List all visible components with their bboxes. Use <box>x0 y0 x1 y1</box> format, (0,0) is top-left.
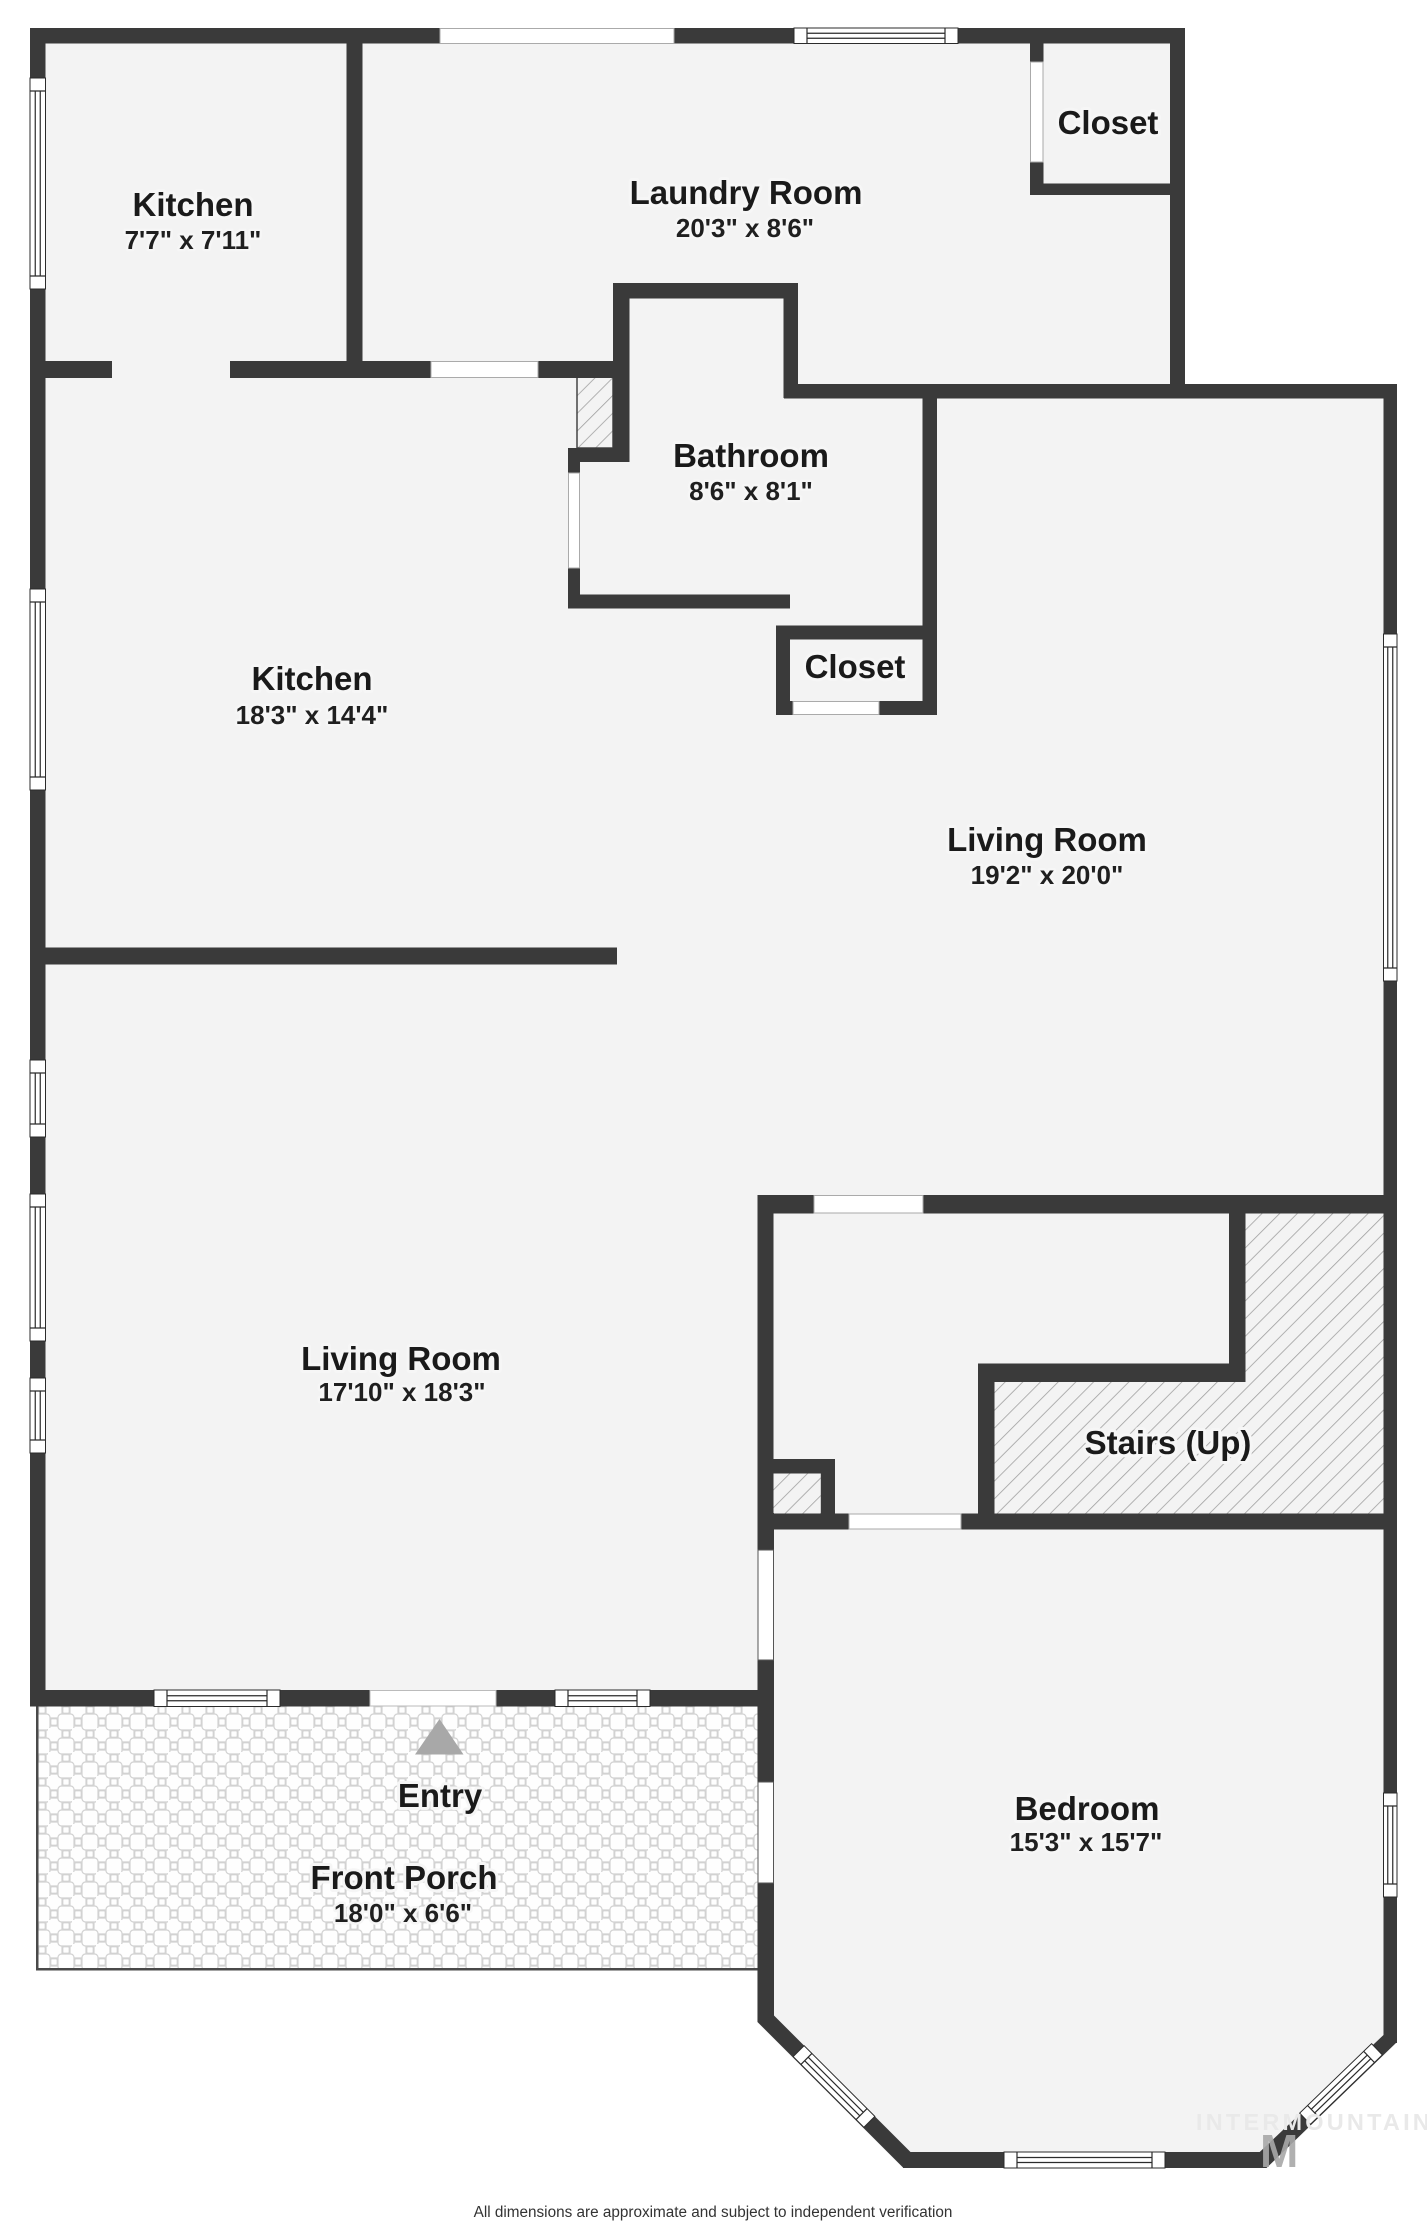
svg-text:Living Room: Living Room <box>947 821 1147 858</box>
svg-text:Living Room: Living Room <box>301 1340 501 1377</box>
svg-text:19'2" x 20'0": 19'2" x 20'0" <box>971 860 1124 890</box>
svg-text:Kitchen: Kitchen <box>132 186 253 223</box>
svg-text:Entry: Entry <box>398 1777 483 1814</box>
svg-text:All dimensions are approximate: All dimensions are approximate and subje… <box>474 2204 953 2221</box>
svg-text:18'0" x 6'6": 18'0" x 6'6" <box>334 1898 472 1928</box>
svg-text:7'7" x 7'11": 7'7" x 7'11" <box>125 225 262 255</box>
svg-text:Closet: Closet <box>1058 104 1159 141</box>
svg-text:Front Porch: Front Porch <box>311 1859 498 1896</box>
svg-text:Stairs (Up): Stairs (Up) <box>1085 1424 1252 1461</box>
svg-text:Bathroom: Bathroom <box>673 437 829 474</box>
svg-text:Bedroom: Bedroom <box>1015 1790 1160 1827</box>
svg-text:18'3" x 14'4": 18'3" x 14'4" <box>236 700 389 730</box>
svg-text:8'6" x 8'1": 8'6" x 8'1" <box>689 476 813 506</box>
svg-text:20'3" x 8'6": 20'3" x 8'6" <box>676 213 814 243</box>
svg-text:17'10" x 18'3": 17'10" x 18'3" <box>318 1377 485 1407</box>
svg-text:M: M <box>1260 2125 1298 2177</box>
svg-text:Kitchen: Kitchen <box>251 660 372 697</box>
svg-text:15'3" x 15'7": 15'3" x 15'7" <box>1010 1827 1163 1857</box>
svg-text:INTERMOUNTAIN: INTERMOUNTAIN <box>1196 2109 1427 2135</box>
svg-text:Laundry Room: Laundry Room <box>630 174 863 211</box>
svg-text:Closet: Closet <box>805 648 906 685</box>
